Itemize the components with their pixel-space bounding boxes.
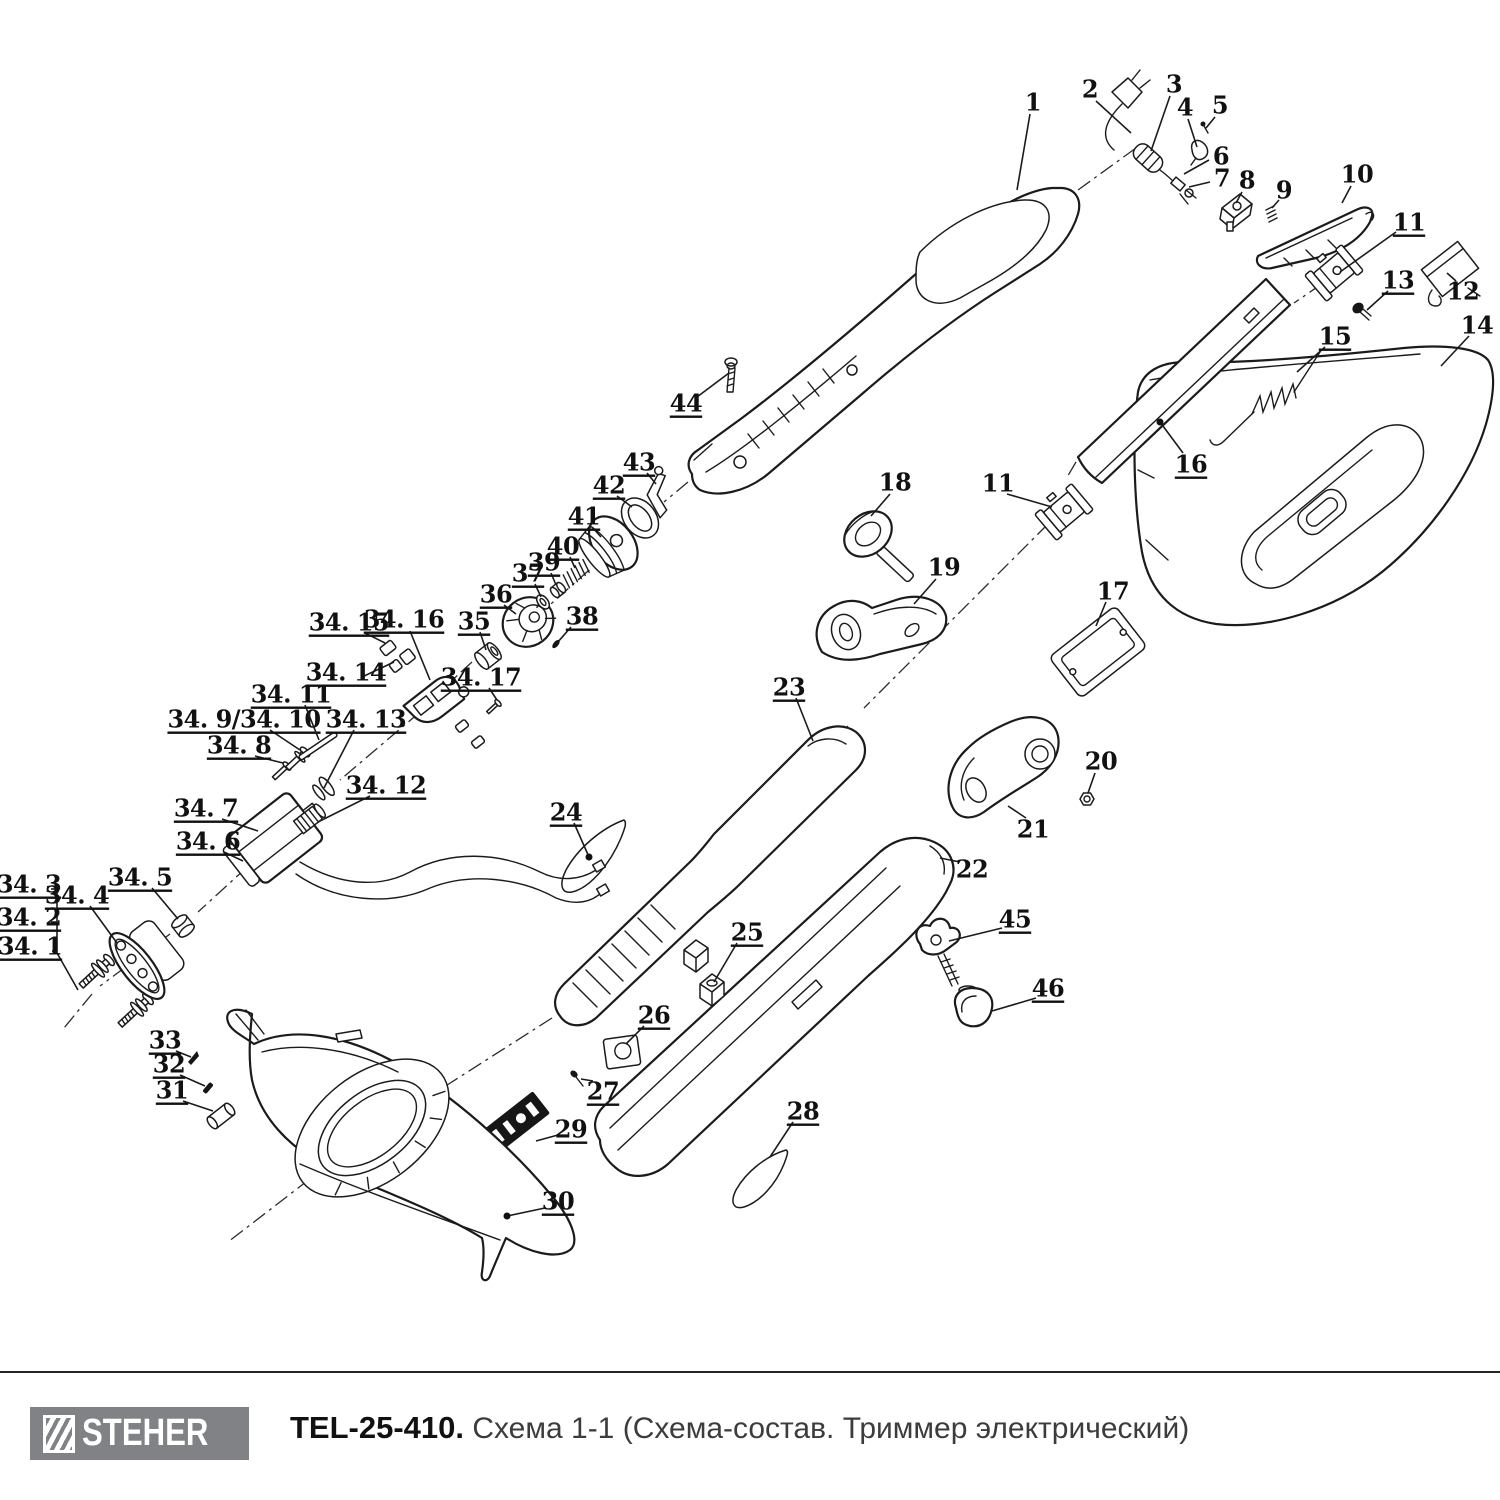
callout-34-13: 34. 13 bbox=[326, 705, 407, 734]
part-20-nut bbox=[1080, 793, 1094, 805]
callout-5: 5 bbox=[1212, 91, 1228, 120]
callout-36: 36 bbox=[480, 580, 512, 609]
part-32-pin bbox=[202, 1082, 214, 1094]
leader-46 bbox=[992, 998, 1036, 1011]
leader-1 bbox=[1017, 114, 1030, 190]
brand-name: STEHER bbox=[82, 1412, 208, 1455]
callout-34-16: 34. 16 bbox=[364, 605, 445, 634]
callout-43: 43 bbox=[623, 448, 655, 477]
callout-27: 27 bbox=[587, 1077, 619, 1106]
callout-34-8: 34. 8 bbox=[207, 731, 271, 760]
callout-8: 8 bbox=[1239, 166, 1255, 195]
leader-10 bbox=[1342, 186, 1351, 203]
callout-34-17: 34. 17 bbox=[441, 663, 522, 692]
footer-divider bbox=[0, 1371, 1500, 1373]
callout-11a: 11 bbox=[1393, 208, 1425, 237]
callout-28: 28 bbox=[787, 1097, 819, 1126]
callout-34-5: 34. 5 bbox=[108, 863, 172, 892]
callout-14: 14 bbox=[1461, 311, 1493, 340]
diagram-caption: TEL-25-410. Схема 1-1 (Схема-состав. Три… bbox=[290, 1410, 1189, 1446]
callout-30: 30 bbox=[542, 1187, 574, 1216]
leader-dot-30 bbox=[504, 1213, 511, 1220]
callout-20: 20 bbox=[1085, 747, 1117, 776]
axis-line bbox=[1066, 462, 1076, 479]
callout-18: 18 bbox=[879, 468, 911, 497]
footer: STEHER TEL-25-410. Схема 1-1 (Схема-сост… bbox=[0, 1400, 1500, 1470]
callout-19: 19 bbox=[928, 553, 960, 582]
callout-44: 44 bbox=[670, 389, 702, 418]
callout-9: 9 bbox=[1276, 176, 1292, 205]
callout-31: 31 bbox=[156, 1076, 188, 1105]
part-27-screw bbox=[569, 1069, 583, 1086]
callout-13: 13 bbox=[1382, 266, 1414, 295]
model-number: TEL-25-410. bbox=[290, 1410, 464, 1445]
part-25-nut bbox=[684, 940, 724, 1006]
callout-11b: 11 bbox=[982, 469, 1014, 498]
leader-34-5 bbox=[152, 888, 178, 919]
axis-line bbox=[1078, 148, 1136, 190]
callout-21: 21 bbox=[1017, 815, 1049, 844]
caption-subtitle: Схема 1-1 (Схема-состав. Триммер электри… bbox=[464, 1412, 1189, 1445]
part-34-motor-assembly bbox=[75, 640, 609, 1032]
callout-34-4: 34. 4 bbox=[45, 881, 109, 910]
callout-15: 15 bbox=[1319, 322, 1351, 351]
callout-35: 35 bbox=[458, 607, 490, 636]
leader-dot-16 bbox=[1157, 419, 1164, 426]
part-10-rail bbox=[1257, 208, 1374, 269]
callout-4: 4 bbox=[1177, 93, 1193, 122]
callout-34-7: 34. 7 bbox=[174, 794, 238, 823]
callout-29: 29 bbox=[555, 1115, 587, 1144]
part-28-guard-insert-small bbox=[733, 1150, 788, 1208]
part-39-nut bbox=[549, 581, 567, 599]
part-26-square-plate bbox=[603, 1035, 641, 1069]
part-18-knob-bolt bbox=[835, 502, 914, 583]
callout-22: 22 bbox=[956, 855, 988, 884]
part-8-switch bbox=[1220, 194, 1252, 231]
callout-2: 2 bbox=[1082, 75, 1098, 104]
callout-46: 46 bbox=[1032, 974, 1064, 1003]
brand-logo: STEHER bbox=[30, 1407, 249, 1460]
callout-34-6: 34. 6 bbox=[176, 827, 240, 856]
leader-23 bbox=[796, 698, 813, 741]
part-45-wing-bolt bbox=[916, 919, 959, 986]
leader-dot-24 bbox=[586, 854, 593, 861]
part-40-spring bbox=[561, 559, 592, 587]
callout-26: 26 bbox=[638, 1001, 670, 1030]
axis-line bbox=[64, 994, 92, 1028]
part-24-guard-insert bbox=[562, 820, 626, 892]
exploded-parts-diagram: 1234567891011121314151617181920212223242… bbox=[0, 0, 1500, 1500]
leader-20 bbox=[1088, 773, 1095, 793]
leader-3 bbox=[1151, 96, 1170, 151]
part-9-spring bbox=[1266, 206, 1277, 222]
callout-23: 23 bbox=[773, 673, 805, 702]
part-33-clip bbox=[188, 1051, 199, 1065]
part-21-handle-clamp-lower bbox=[949, 717, 1059, 817]
callout-12: 12 bbox=[1447, 277, 1479, 306]
callout-45: 45 bbox=[999, 905, 1031, 934]
callout-17: 17 bbox=[1097, 577, 1129, 606]
callout-10: 10 bbox=[1341, 160, 1373, 189]
callout-42: 42 bbox=[593, 471, 625, 500]
leader-6 bbox=[1184, 160, 1209, 174]
callout-38: 38 bbox=[566, 602, 598, 631]
part-34-5-bushing bbox=[170, 913, 196, 940]
axis-line bbox=[664, 482, 688, 502]
part-34-17-screw bbox=[485, 699, 502, 716]
steher-logo-icon bbox=[43, 1415, 75, 1453]
part-34-13-washer bbox=[310, 775, 337, 803]
part-46-knob bbox=[955, 986, 992, 1026]
callout-1: 1 bbox=[1025, 88, 1041, 117]
part-19-handle-clamp-upper bbox=[817, 597, 947, 660]
callout-34-14: 34. 14 bbox=[306, 658, 387, 687]
callout-34-12: 34. 12 bbox=[346, 771, 427, 800]
callout-25: 25 bbox=[731, 918, 763, 947]
callout-34-1: 34. 1 bbox=[0, 932, 62, 961]
callout-16: 16 bbox=[1175, 450, 1207, 479]
part-30-guard bbox=[227, 1010, 574, 1280]
callout-40: 40 bbox=[547, 532, 579, 561]
leader-34-12 bbox=[318, 796, 370, 822]
callout-24: 24 bbox=[550, 798, 582, 827]
part-7-connector bbox=[1171, 177, 1196, 204]
callout-7: 7 bbox=[1214, 164, 1230, 193]
part-1-upper-housing bbox=[689, 188, 1080, 493]
leader-25 bbox=[714, 943, 737, 982]
leader-34-4 bbox=[90, 906, 117, 943]
part-31-bushing bbox=[205, 1102, 236, 1131]
callout-33: 33 bbox=[149, 1026, 181, 1055]
callout-34-9-10: 34. 9/34. 10 bbox=[167, 705, 320, 734]
part-34-14-cylinders bbox=[388, 648, 416, 673]
part-2-power-cord bbox=[1106, 70, 1196, 204]
callout-41: 41 bbox=[568, 502, 600, 531]
leader-7 bbox=[1189, 182, 1210, 187]
